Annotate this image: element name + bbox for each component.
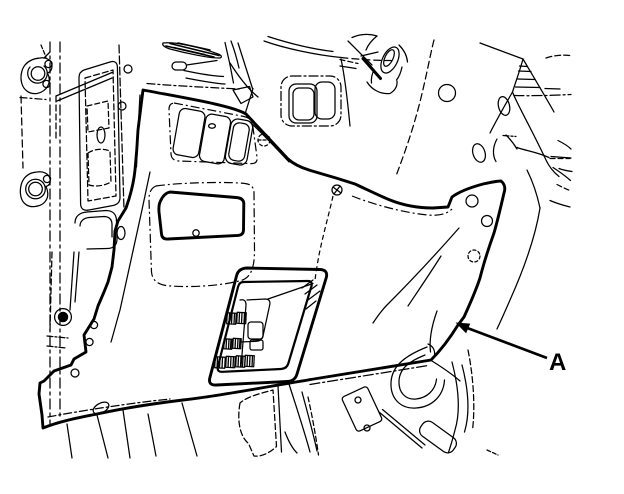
svg-text:A: A	[549, 349, 566, 376]
